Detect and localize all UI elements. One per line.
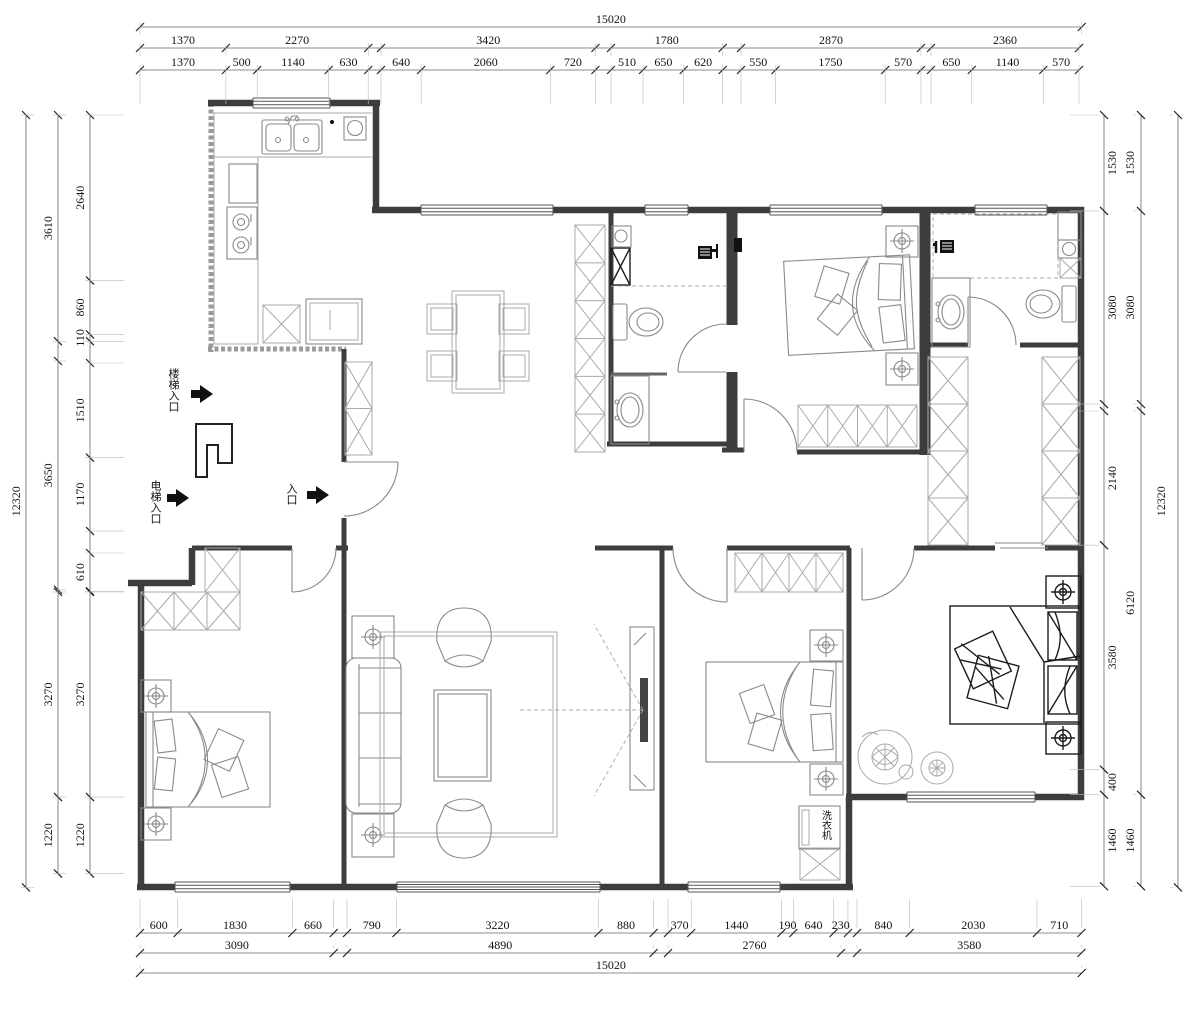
structural-column: [196, 424, 232, 477]
refrigerator: [306, 299, 362, 344]
dimension-value: 3420: [476, 33, 500, 47]
entrance-door: [344, 462, 398, 516]
dimension-value: 570: [894, 55, 912, 69]
dining-chairs: [427, 304, 529, 381]
toilet-icon-2: [1026, 286, 1076, 322]
dining-table: [452, 291, 504, 393]
kitchen-prep-cabinet: [229, 164, 257, 203]
toilet-icon: [613, 304, 663, 340]
bedroom2-bed: [706, 662, 843, 762]
bedroom1-bed: [146, 712, 270, 807]
dimension-value: 1440: [724, 918, 748, 932]
dimension-value: 1460: [1105, 828, 1119, 852]
dimension-value: 1460: [1123, 828, 1137, 852]
armchair-1: [437, 608, 491, 667]
dimension-value: 2760: [743, 938, 767, 952]
dimension-value: 1170: [73, 483, 87, 507]
dimension-value: 3650: [41, 463, 55, 487]
dimension-value: 110: [73, 329, 87, 347]
wall-switch-panel: [734, 238, 742, 252]
dimension-value: 1220: [73, 823, 87, 847]
shower-head-icon-2: [933, 240, 954, 253]
dimension-value: 880: [617, 918, 635, 932]
dimension-value: 860: [73, 298, 87, 316]
dimension-value: 790: [363, 918, 381, 932]
closet-sliding-door: [995, 543, 1048, 548]
master-bed: [784, 255, 915, 355]
dimension-value: 1510: [73, 398, 87, 422]
lamp-icon: [890, 229, 914, 253]
dimension-value: 3270: [41, 683, 55, 707]
dimension-value: 1830: [223, 918, 247, 932]
lamp-icon: [361, 823, 385, 847]
dimension-value: 1530: [1105, 151, 1119, 175]
plant-small: [921, 752, 953, 784]
dimension-value: 3090: [225, 938, 249, 952]
annotations-layer: 楼梯入口 电梯入口 入口: [149, 367, 329, 524]
dimension-value: 2640: [73, 186, 87, 210]
dimension-value: 3580: [957, 938, 981, 952]
lamp-icon: [144, 684, 168, 708]
dimension-value: 2140: [1105, 466, 1119, 490]
lamp-icon: [814, 633, 838, 657]
dimension-value: 710: [1050, 918, 1068, 932]
armchair-2: [437, 799, 491, 858]
dimension-value: 2870: [819, 33, 843, 47]
dimension-value: 3580: [1105, 645, 1119, 669]
dimension-value: 3080: [1123, 295, 1137, 319]
bathroom1: [611, 226, 729, 444]
elevator-entrance-label: 电梯入口: [149, 480, 162, 524]
dimension-value: 660: [304, 918, 322, 932]
dimension-value: 650: [942, 55, 960, 69]
dimension-value: 1370: [171, 55, 195, 69]
dimension-value: 1780: [655, 33, 679, 47]
dimension-value: 570: [1052, 55, 1070, 69]
dimension-value: 610: [73, 563, 87, 581]
entrance-label: 入口: [285, 483, 298, 505]
kitchen-gas-stove: [227, 207, 257, 259]
rug: [380, 632, 557, 837]
lamp-icon: [890, 357, 914, 381]
dimension-value: 510: [618, 55, 636, 69]
tv-viewing-lines: [520, 624, 643, 796]
dimension-value: 2060: [474, 55, 498, 69]
dimension-value: 12320: [1154, 486, 1168, 516]
dimension-value: 640: [392, 55, 410, 69]
dimension-value: 2270: [285, 33, 309, 47]
dimension-value: 3610: [41, 216, 55, 240]
dimension-value: 1370: [171, 33, 195, 47]
kitchen-counter: [214, 113, 372, 344]
washbasin-icon: [611, 376, 649, 444]
dimension-value: 3220: [485, 918, 509, 932]
dimension-value: 840: [874, 918, 892, 932]
shower-head-icon: [698, 244, 717, 259]
plant-large: [858, 730, 913, 784]
entrance-arrow-icon: [307, 486, 329, 504]
dimension-value: 650: [654, 55, 672, 69]
floor-plan-canvas: 洗衣机 楼梯入口 电梯入口: [0, 0, 1200, 1014]
dimension-value: 12320: [9, 486, 23, 516]
dimension-value: 620: [694, 55, 712, 69]
lamp-icon: [361, 625, 385, 649]
dimension-value: 1140: [996, 55, 1020, 69]
dimension-value: 1750: [818, 55, 842, 69]
washing-machine: 洗衣机: [799, 806, 840, 849]
elevator-entrance-arrow-icon: [167, 489, 189, 507]
kitchen-sink: [262, 116, 322, 154]
dimension-value: 3270: [73, 683, 87, 707]
dimension-value: 230: [832, 918, 850, 932]
dimension-value: 15020: [596, 12, 626, 26]
floor-plan-page: 洗衣机 楼梯入口 电梯入口: [0, 0, 1200, 1014]
dimension-value: 630: [339, 55, 357, 69]
dimension-value: 2360: [993, 33, 1017, 47]
dimension-value: 370: [671, 918, 689, 932]
dimension-value: 4890: [488, 938, 512, 952]
bathroom1-door: [678, 324, 726, 372]
dimension-value: 640: [804, 918, 822, 932]
lamp-icon: [814, 767, 838, 791]
dimension-value: 6120: [1123, 591, 1137, 615]
dimension-value: 190: [778, 918, 796, 932]
dimension-value: 1220: [41, 823, 55, 847]
bedroom3-door: [862, 548, 914, 600]
sofa: [346, 658, 401, 813]
kitchen-water-heater: [344, 117, 366, 140]
lamp-icon: [1051, 580, 1075, 604]
dimension-value: 2030: [961, 918, 985, 932]
lamp-icon: [1051, 726, 1075, 750]
bedroom3-bed: [950, 606, 1081, 724]
dimension-value: 720: [564, 55, 582, 69]
dimension-value: 400: [1105, 773, 1119, 791]
coffee-table: [434, 690, 491, 781]
bathroom2: [932, 212, 1081, 347]
master-bedroom-door: [744, 399, 797, 452]
dimension-value: 1140: [281, 55, 305, 69]
kitchen-outlet-dot: [330, 120, 334, 124]
washbasin-icon-2: [932, 278, 970, 347]
bedroom2-door: [673, 548, 727, 602]
washing-machine-label: 洗衣机: [820, 810, 832, 841]
dimension-value: 600: [150, 918, 168, 932]
dimension-layer: 1502013702270342017802870236013705001140…: [9, 12, 1182, 977]
stair-entrance-arrow-icon: [191, 385, 213, 403]
dimension-value: 550: [749, 55, 767, 69]
dimension-value: 15020: [596, 958, 626, 972]
stair-entrance-label: 楼梯入口: [167, 367, 180, 412]
dimension-value: 3080: [1105, 295, 1119, 319]
bedroom1-door: [292, 548, 336, 592]
dimension-value: 500: [233, 55, 251, 69]
bathroom2-door: [968, 297, 1016, 345]
dimension-value: 1530: [1123, 151, 1137, 175]
lamp-icon: [144, 812, 168, 836]
